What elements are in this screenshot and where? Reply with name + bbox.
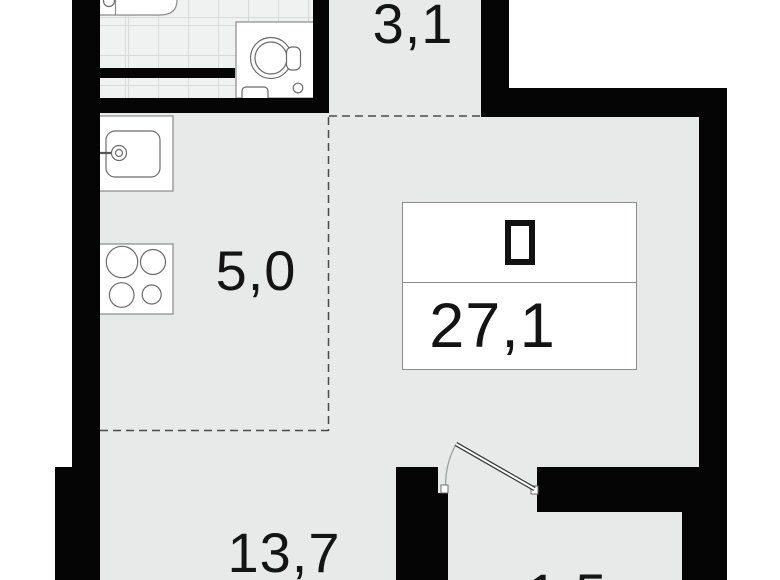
total-area-value-cell: 27,1 xyxy=(403,283,636,369)
floor-plan: 3,1 5,0 13,7 1,5 27,1 xyxy=(0,0,780,580)
door-and-zones-layer xyxy=(0,0,780,580)
living-room-area-label: 13,7 xyxy=(228,525,341,580)
hallway-area-label: 3,1 xyxy=(373,0,454,52)
door-room-icon xyxy=(505,220,535,265)
total-area-icon-cell xyxy=(403,203,636,283)
total-area-box: 27,1 xyxy=(402,202,637,370)
total-area-value: 27,1 xyxy=(429,295,556,358)
entry-door-icon xyxy=(441,444,538,494)
kitchen-area-label: 5,0 xyxy=(216,243,297,299)
entry-area-label: 1,5 xyxy=(527,566,608,580)
